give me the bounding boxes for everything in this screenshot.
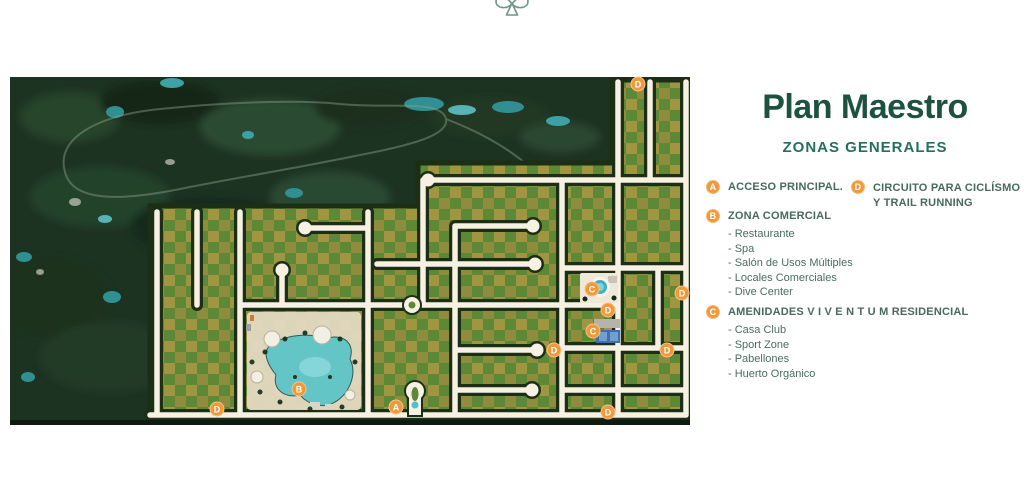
page-title: Plan Maestro (700, 88, 1024, 127)
legend-item: - Salón de Usos Múltiples (728, 256, 853, 271)
map-marker-d: D (210, 402, 225, 417)
legend-item: - Casa Club (728, 323, 968, 338)
legend-section-comercial: B ZONA COMERCIAL - Restaurante - Spa - S… (706, 210, 853, 300)
commercial-zone (247, 312, 361, 412)
marker-letter: B (296, 383, 303, 395)
marker-letter: D (635, 78, 642, 90)
marker-letter: D (664, 344, 671, 356)
legend-title-d-line2: Y TRAIL RUNNING (873, 196, 1020, 211)
map-marker-d: D (601, 405, 616, 420)
legend-item: - Huerto Orgánico (728, 367, 968, 382)
legend-item: - Locales Comerciales (728, 271, 853, 286)
map-illustration (10, 77, 690, 425)
legend-badge-d: D (851, 180, 865, 194)
legend-section-amenidades: C AMENIDADES V I V E N T U M RESIDENCIAL… (706, 306, 968, 381)
main-entrance (404, 380, 426, 417)
marker-letter: D (551, 344, 558, 356)
page-subtitle: ZONAS GENERALES (700, 139, 1024, 156)
legend-title-d-line1: CIRCUITO PARA CICLÍSMO (873, 181, 1020, 196)
marker-letter: D (679, 287, 686, 299)
map-marker-d: D (601, 303, 616, 318)
map-marker-d: D (631, 77, 646, 92)
legend-item: - Sport Zone (728, 338, 968, 353)
marker-letter: D (605, 406, 612, 418)
legend-item: - Restaurante (728, 227, 853, 242)
legend-section-circuito: D CIRCUITO PARA CICLÍSMO Y TRAIL RUNNING (851, 181, 1020, 210)
legend-badge-c: C (706, 305, 720, 319)
legend-item: - Spa (728, 242, 853, 257)
brand-emblem-logo (492, 0, 532, 22)
map-marker-c: C (586, 324, 601, 339)
marker-letter: C (590, 325, 597, 337)
marker-letter: D (605, 304, 612, 316)
legend-badge-a: A (706, 180, 720, 194)
map-marker-c: C (585, 282, 600, 297)
legend-title-b: ZONA COMERCIAL (728, 210, 831, 222)
legend-items-c: - Casa Club - Sport Zone - Pabellones - … (728, 323, 968, 381)
master-plan-map: D D C D C D D B A D D (10, 77, 690, 425)
roundabout (402, 295, 422, 315)
legend-item: - Dive Center (728, 285, 853, 300)
legend-items-b: - Restaurante - Spa - Salón de Usos Múlt… (728, 227, 853, 300)
marker-letter: D (214, 403, 221, 415)
map-marker-d: D (547, 343, 562, 358)
legend-title-a: ACCESO PRINCIPAL. (728, 181, 843, 193)
marker-letter: C (589, 283, 596, 295)
legend-section-acceso: A ACCESO PRINCIPAL. (706, 181, 843, 194)
map-marker-d: D (675, 286, 690, 301)
map-marker-d: D (660, 343, 675, 358)
map-marker-b: B (292, 382, 307, 397)
legend-item: - Pabellones (728, 352, 968, 367)
map-marker-a: A (389, 400, 404, 415)
legend-title-c: AMENIDADES V I V E N T U M RESIDENCIAL (728, 306, 968, 318)
legend-badge-b: B (706, 209, 720, 223)
map-bottom-edge (10, 420, 690, 425)
page: D D C D C D D B A D D Plan Maestro ZONAS… (0, 0, 1024, 503)
marker-letter: A (393, 401, 400, 413)
legend-title-d: CIRCUITO PARA CICLÍSMO Y TRAIL RUNNING (873, 181, 1020, 210)
